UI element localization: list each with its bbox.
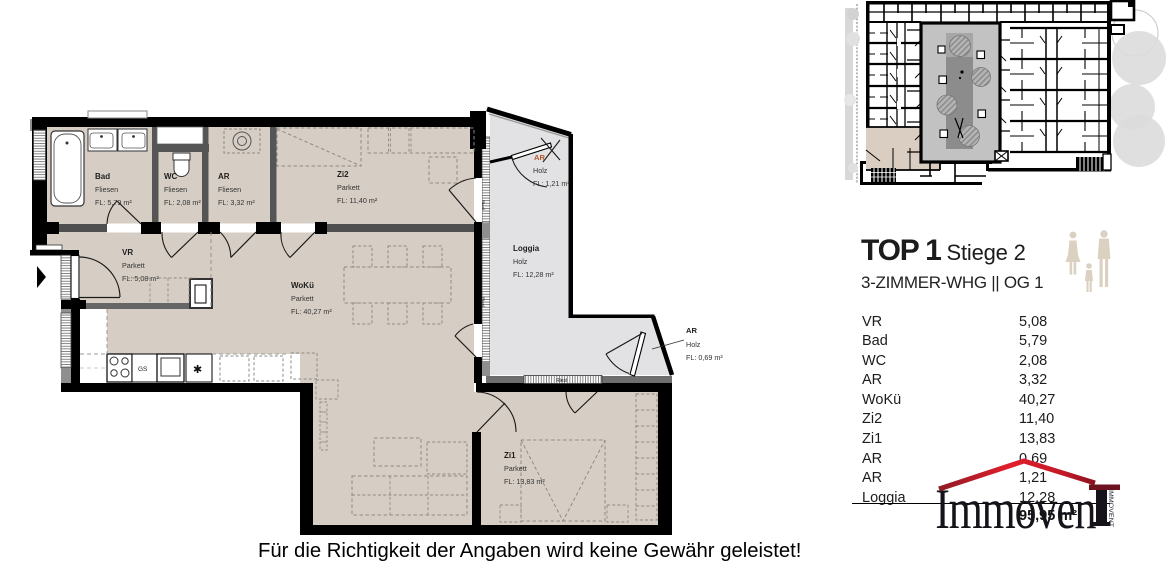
svg-text:Immoven: Immoven xyxy=(935,479,1096,542)
svg-text:✱: ✱ xyxy=(193,364,202,376)
svg-text:Zi2: Zi2 xyxy=(337,170,349,179)
svg-text:Parkett: Parkett xyxy=(337,183,360,192)
svg-text:FL: 0,69 m²: FL: 0,69 m² xyxy=(686,353,723,362)
svg-text:FL: 5,08 m²: FL: 5,08 m² xyxy=(122,274,159,283)
svg-text:Holz: Holz xyxy=(686,340,701,349)
svg-text:Parkett: Parkett xyxy=(122,261,145,270)
svg-text:Bad: Bad xyxy=(95,172,110,181)
svg-text:Holz: Holz xyxy=(533,166,548,175)
svg-text:Riesl: Riesl xyxy=(481,297,486,307)
svg-text:Zi1: Zi1 xyxy=(504,451,516,460)
svg-text:FL: 1,21 m²: FL: 1,21 m² xyxy=(533,179,570,188)
svg-text:FL: 5,79 m²: FL: 5,79 m² xyxy=(95,198,132,207)
svg-text:FL: 3,32 m²: FL: 3,32 m² xyxy=(218,198,255,207)
svg-text:FL: 12,28 m²: FL: 12,28 m² xyxy=(513,270,554,279)
svg-text:Riesl: Riesl xyxy=(556,378,567,384)
svg-text:Fliesen: Fliesen xyxy=(164,185,187,194)
svg-text:AR: AR xyxy=(218,172,230,181)
svg-text:Parkett: Parkett xyxy=(291,294,314,303)
svg-text:AR: AR xyxy=(686,326,697,335)
svg-text:IMMOVENT: IMMOVENT xyxy=(1107,489,1114,527)
svg-text:GS: GS xyxy=(138,366,148,373)
svg-text:Fliesen: Fliesen xyxy=(218,185,241,194)
svg-text:FL: 2,08 m²: FL: 2,08 m² xyxy=(164,198,201,207)
svg-text:AR: AR xyxy=(534,153,545,162)
svg-text:FL: 40,27 m²: FL: 40,27 m² xyxy=(291,307,332,316)
svg-text:WoKü: WoKü xyxy=(291,281,314,290)
svg-text:Holz: Holz xyxy=(513,257,528,266)
svg-text:FL: 13,83 m²: FL: 13,83 m² xyxy=(504,477,545,486)
svg-text:VR: VR xyxy=(122,248,133,257)
svg-text:Fliesen: Fliesen xyxy=(95,185,118,194)
svg-text:Loggia: Loggia xyxy=(513,244,540,253)
svg-text:FL: 11,40 m²: FL: 11,40 m² xyxy=(337,196,378,205)
svg-text:WC: WC xyxy=(164,172,178,181)
svg-text:Parkett: Parkett xyxy=(504,464,527,473)
